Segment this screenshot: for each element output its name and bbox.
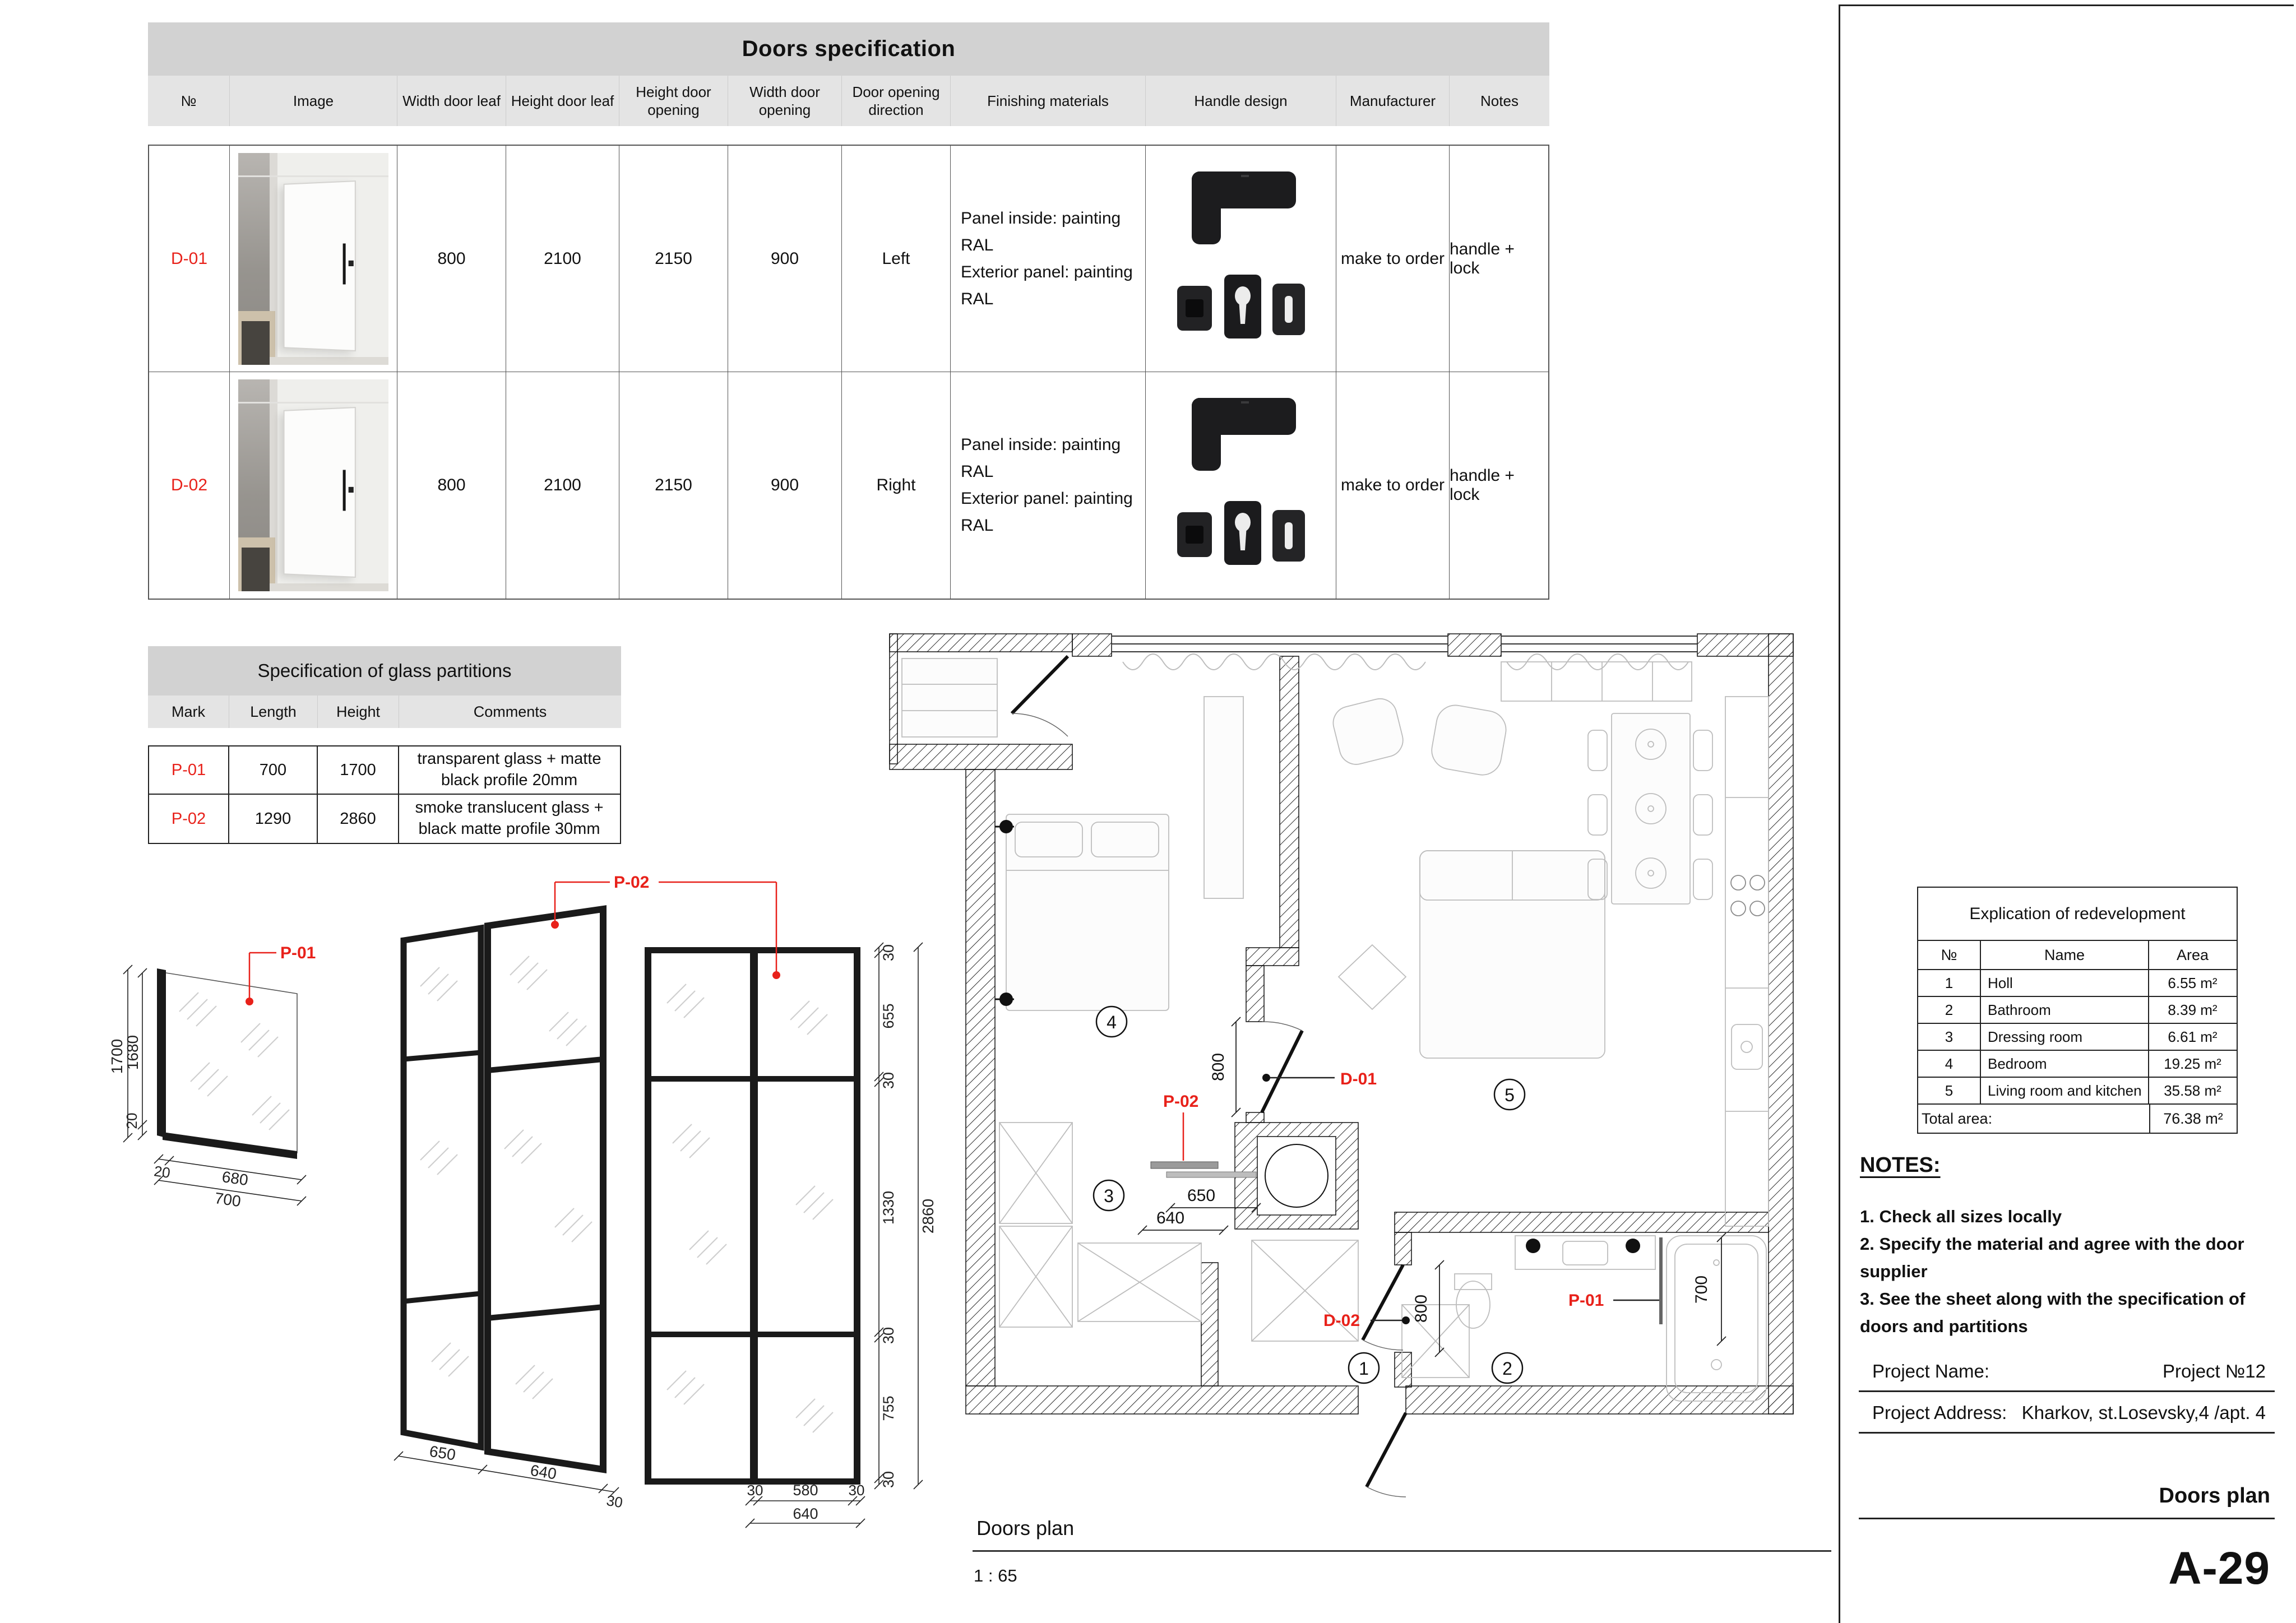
room-number-2: 2 [1502,1358,1512,1379]
partition-mark: P-02 [149,795,229,843]
handle-design-image [1157,152,1325,365]
p02-bottom-640: 640 [793,1505,818,1522]
svg-text:P-01: P-01 [280,944,316,962]
height-door-opening: 2150 [619,372,728,599]
finishing-materials: Panel inside: painting RAL Exterior pane… [951,146,1146,372]
dim-650: 650 [1187,1186,1215,1205]
explication-row: 4 Bedroom 19.25 m² [1918,1051,2237,1078]
explication-header: № Name Area [1918,941,2237,970]
label-p01: P-01 [1568,1291,1604,1310]
title-block-divider [1839,4,1840,1623]
svg-text:P-02: P-02 [614,874,649,892]
explication-total-row: Total area: 76.38 m² [1918,1105,2237,1133]
room-number-3: 3 [1104,1186,1114,1206]
p02-isometric: 650 640 30 [394,909,624,1511]
photo-door-leaf [284,407,356,578]
p02-iso-30: 30 [605,1492,624,1511]
door-id: D-02 [149,372,230,599]
project-address-label: Project Address: [1872,1402,2007,1423]
doors-table-title: Doors specification [148,22,1549,76]
col-header-direction: Door opening direction [842,76,951,126]
partition-height: 1700 [318,746,399,794]
room-number-4: 4 [1107,1012,1117,1032]
partitions-table-header: Mark Length Height Comments [148,695,621,728]
partitions-table-title: Specification of glass partitions [148,646,621,695]
width-door-leaf: 800 [397,146,506,372]
col-header-no: № [148,76,230,126]
col-header-height-leaf: Height door leaf [506,76,619,126]
p01-dim-1680: 1680 [124,1035,141,1070]
p02-iso-650: 650 [428,1443,457,1464]
title-block-line [1859,1390,2275,1392]
handle-design-cell [1146,146,1336,372]
label-d01: D-01 [1340,1070,1377,1088]
p02-bottom-30b: 30 [849,1482,865,1499]
partition-length: 1290 [229,795,318,843]
width-door-opening: 900 [728,146,842,372]
explication-row: 3 Dressing room 6.61 m² [1918,1024,2237,1051]
p02-partition-plan [1151,1162,1218,1168]
partitions-table-body: P-01 700 1700 transparent glass + matte … [148,745,621,844]
door-id: D-01 [149,146,230,372]
faucet-icon [1526,1239,1540,1253]
dim-700: 700 [1692,1276,1711,1304]
table-row-p02: P-02 1290 2860 smoke translucent glass +… [149,795,620,843]
door-photo-cell [230,146,397,372]
partition-height: 2860 [318,795,399,843]
door-photo [238,379,388,591]
title-block-line [1859,1518,2275,1519]
p01-dim-20v: 20 [123,1113,140,1129]
plan-windows [1112,636,1697,652]
drawing-sheet: Doors specification № Image Width door l… [0,0,2296,1623]
room-number-5: 5 [1505,1085,1515,1105]
notes-cell: handle + lock [1450,146,1548,372]
project-name-label: Project Name: [1872,1361,1989,1382]
dim-800-d01: 800 [1209,1053,1228,1081]
manufacturer: make to order [1336,146,1450,372]
p02-bottom-580: 580 [793,1482,818,1499]
width-door-opening: 900 [728,372,842,599]
note-item: 3. See the sheet along with the specific… [1860,1286,2292,1341]
partition-drawings: 1700 1680 20 20 680 700 P-01 [107,874,959,1580]
door-photo [238,153,388,365]
p02-partition-plan [1166,1172,1256,1177]
explication-table: Explication of redevelopment № Name Area… [1917,887,2238,1134]
sheet-number: A-29 [1859,1542,2270,1595]
table-row-d02: D-02 800 2100 2150 900 R [149,372,1548,599]
label-p02: P-02 [1163,1092,1198,1111]
table-row-d01: D-01 800 2100 2150 900 L [149,146,1548,372]
col-header-finishing: Finishing materials [951,76,1146,126]
note-item: 2. Specify the material and agree with t… [1860,1231,2292,1286]
explication-title: Explication of redevelopment [1918,888,2237,941]
explication-row: 1 Holl 6.55 m² [1918,970,2237,997]
label-d02: D-02 [1323,1311,1360,1330]
notes-cell: handle + lock [1450,372,1548,599]
handle-design-cell [1146,372,1336,599]
partition-length: 700 [229,746,318,794]
door-photo-cell [230,372,397,599]
p01-dim-20h: 20 [153,1162,172,1181]
col-header-notes: Notes [1450,76,1549,126]
col-header-width-leaf: Width door leaf [397,76,506,126]
dim-640: 640 [1156,1209,1184,1227]
col-header-manufacturer: Manufacturer [1336,76,1450,126]
doors-table-body: D-01 800 2100 2150 900 L [148,145,1549,600]
room-number-1: 1 [1359,1358,1369,1379]
sheet-top-border [1839,4,2294,6]
plan-scale: 1 : 65 [974,1566,1017,1586]
height-door-opening: 2150 [619,146,728,372]
note-item: 1. Check all sizes locally [1860,1203,2292,1231]
p01-dim-680: 680 [221,1168,249,1189]
width-door-leaf: 800 [397,372,506,599]
project-name-value: Project №12 [2040,1361,2266,1382]
p02-iso-640: 640 [529,1462,558,1483]
col-header-image: Image [230,76,397,126]
partition-comments: transparent glass + matte black profile … [399,746,619,794]
p01-dim-700: 700 [214,1189,242,1210]
height-door-leaf: 2100 [506,372,619,599]
project-address-value: Kharkov, st.Losevsky,4 /apt. 4 [1996,1402,2266,1423]
door-opening-direction: Right [842,372,951,599]
photo-door-handle [343,243,346,284]
finishing-materials: Panel inside: painting RAL Exterior pane… [951,372,1146,599]
manufacturer: make to order [1336,372,1450,599]
sheet-title: Doors plan [1859,1484,2270,1508]
photo-door-leaf [284,180,356,351]
p01-dim-1700: 1700 [108,1039,126,1074]
plan-title-underline [973,1550,1831,1552]
dim-800-d02: 800 [1412,1295,1431,1323]
col-header-width-opening: Width door opening [728,76,842,126]
doors-table-title-text: Doors specification [742,36,956,62]
p02-bottom-30a: 30 [747,1482,763,1499]
plan-title: Doors plan [976,1517,1074,1540]
door-opening-direction: Left [842,146,951,372]
height-door-leaf: 2100 [506,146,619,372]
explication-row: 5 Living room and kitchen 35.58 m² [1918,1078,2237,1105]
explication-row: 2 Bathroom 8.39 m² [1918,997,2237,1024]
notes-block: NOTES: 1. Check all sizes locally 2. Spe… [1860,1153,2292,1341]
p01-elevation: 1700 1680 20 20 680 700 P-01 [108,944,316,1210]
partition-comments: smoke translucent glass + black matte pr… [399,795,619,843]
doors-plan-drawing: 800 650 640 800 700 P-02 D-01 D-02 P-01 [887,629,1795,1509]
notes-title: NOTES: [1860,1153,2292,1177]
handle-design-image [1157,379,1325,592]
col-header-height-opening: Height door opening [619,76,728,126]
table-row-p01: P-01 700 1700 transparent glass + matte … [149,746,620,795]
col-header-handle: Handle design [1146,76,1336,126]
partition-mark: P-01 [149,746,229,794]
title-block-line [1859,1432,2275,1434]
faucet-icon [1626,1239,1640,1253]
doors-table-header: № Image Width door leaf Height door leaf… [148,76,1549,126]
